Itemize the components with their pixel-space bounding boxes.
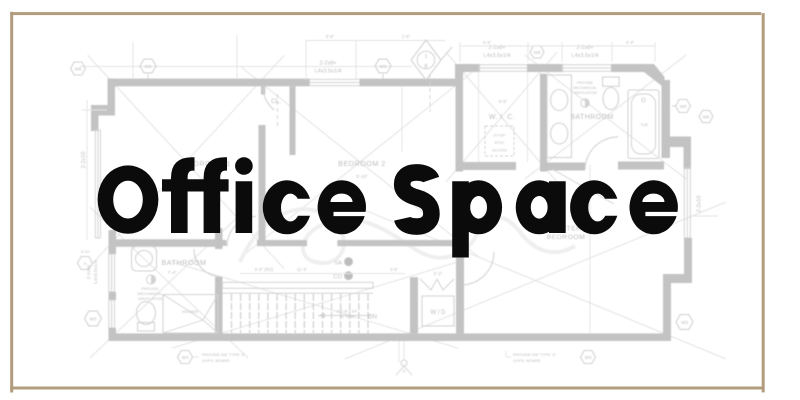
svg-text:VENTILATION: VENTILATION (573, 91, 597, 95)
svg-text:7'-4": 7'-4" (168, 270, 177, 275)
svg-text:3'-6": 3'-6" (390, 267, 399, 272)
svg-text:11" RUN: 11" RUN (340, 315, 354, 319)
svg-text:DN: DN (368, 314, 377, 321)
svg-text:16R @ 7 3/4": 16R @ 7 3/4" (336, 310, 358, 314)
svg-text:VENTILATION: VENTILATION (138, 297, 163, 301)
svg-text:W8: W8 (680, 104, 687, 109)
svg-text:2'-2": 2'-2" (434, 271, 443, 276)
svg-text:X-10: X-10 (81, 249, 90, 254)
svg-text:5'-10": 5'-10" (356, 174, 368, 179)
svg-text:ATTIC: ATTIC (494, 141, 505, 145)
svg-text:PROVIDE: PROVIDE (141, 287, 159, 291)
svg-text:BEDROOM: BEDROOM (547, 234, 586, 241)
svg-text:L4x3.5x1/4: L4x3.5x1/4 (572, 53, 599, 59)
svg-text:11'-4": 11'-4" (297, 267, 308, 272)
svg-text:W3: W3 (585, 355, 592, 360)
svg-text:2-2x10: 2-2x10 (697, 196, 703, 213)
svg-text:TUB: TUB (640, 123, 648, 127)
svg-text:CL.: CL. (271, 98, 281, 105)
svg-text:4'-4": 4'-4" (626, 40, 635, 45)
svg-text:L4x3.5x1/4: L4x3.5x1/4 (315, 69, 342, 75)
svg-text:1'-6": 1'-6" (402, 34, 411, 39)
svg-text:4'-4": 4'-4" (483, 40, 492, 45)
svg-text:W6: W6 (75, 67, 82, 72)
svg-text:MECHANICAL: MECHANICAL (138, 292, 163, 296)
svg-text:ACCESS: ACCESS (492, 149, 507, 153)
svg-text:BEDROOM 2: BEDROOM 2 (338, 159, 386, 168)
svg-text:W. I. C.: W. I. C. (489, 114, 515, 121)
svg-text:6'-6": 6'-6" (499, 99, 508, 104)
svg-text:A: A (83, 261, 86, 266)
svg-text:MECHANICAL: MECHANICAL (573, 86, 597, 90)
svg-text:SHOWER: SHOWER (182, 310, 199, 314)
svg-text:GYPS. BOARD: GYPS. BOARD (202, 358, 230, 363)
svg-text:2-2x8+: 2-2x8+ (86, 264, 92, 279)
svg-text:W3: W3 (90, 317, 97, 322)
svg-text:W3: W3 (145, 64, 152, 69)
svg-text:GYPS. BOARD: GYPS. BOARD (513, 358, 541, 363)
svg-text:PROVIDE 5/8" TYPE 'X': PROVIDE 5/8" TYPE 'X' (513, 352, 556, 357)
svg-text:W8: W8 (534, 50, 541, 55)
svg-text:SA: SA (334, 261, 342, 267)
svg-text:W / D: W / D (431, 310, 447, 316)
svg-text:CL: CL (402, 369, 406, 373)
svg-text:2-2x8+: 2-2x8+ (320, 61, 337, 67)
svg-text:CO: CO (333, 275, 342, 281)
svg-text:5'-6": 5'-6" (326, 34, 335, 39)
svg-text:PROVIDE: PROVIDE (577, 81, 594, 85)
svg-text:W3: W3 (380, 64, 387, 69)
svg-text:1: 1 (425, 54, 428, 60)
svg-text:W3: W3 (681, 320, 688, 325)
svg-text:W6: W6 (703, 115, 710, 120)
svg-text:22"x30": 22"x30" (493, 134, 506, 138)
svg-text:PROVIDE 5/8" TYPE 'X': PROVIDE 5/8" TYPE 'X' (202, 352, 245, 357)
svg-text:2-2x10: 2-2x10 (81, 152, 87, 169)
svg-text:W3: W3 (182, 355, 189, 360)
svg-text:BATHROOM: BATHROOM (162, 258, 207, 267)
svg-text:L4x3.5x1/4: L4x3.5x1/4 (484, 53, 511, 59)
svg-text:5'-6" (RO): 5'-6" (RO) (255, 267, 274, 272)
svg-text:BATHROOM: BATHROOM (570, 114, 613, 121)
svg-text:L4x3.5x1/4: L4x3.5x1/4 (93, 260, 99, 284)
